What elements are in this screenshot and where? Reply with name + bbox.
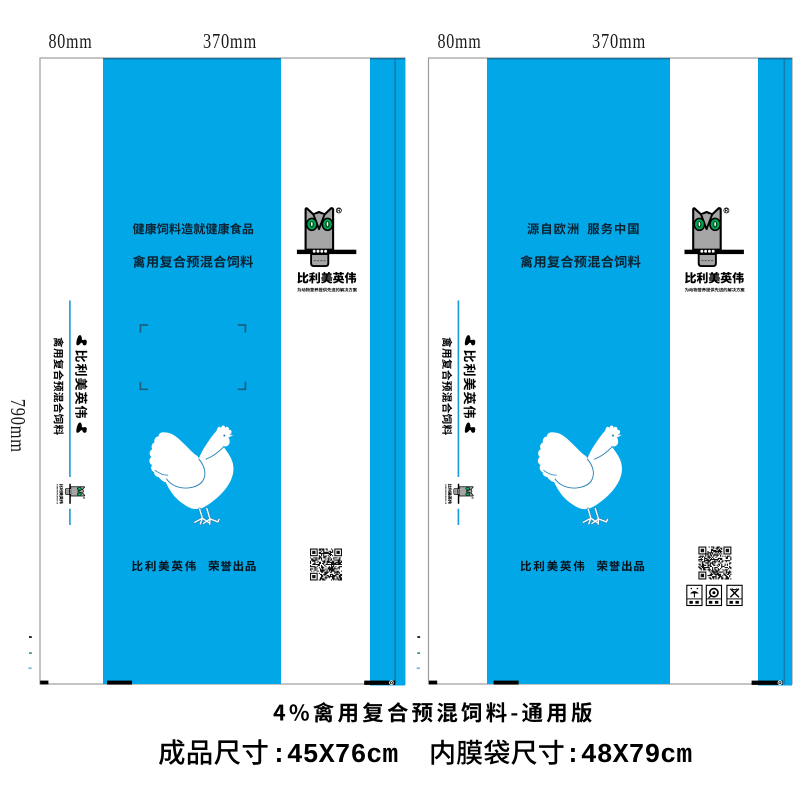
svg-text:80mm: 80mm xyxy=(49,29,93,53)
svg-text:80mm: 80mm xyxy=(438,29,482,53)
svg-text:370mm: 370mm xyxy=(592,29,646,53)
svg-text::45X76cm: :45X76cm xyxy=(271,740,398,770)
svg-text:790mm: 790mm xyxy=(6,399,30,453)
svg-text::48X79cm: :48X79cm xyxy=(565,740,692,770)
svg-text:370mm: 370mm xyxy=(203,29,257,53)
